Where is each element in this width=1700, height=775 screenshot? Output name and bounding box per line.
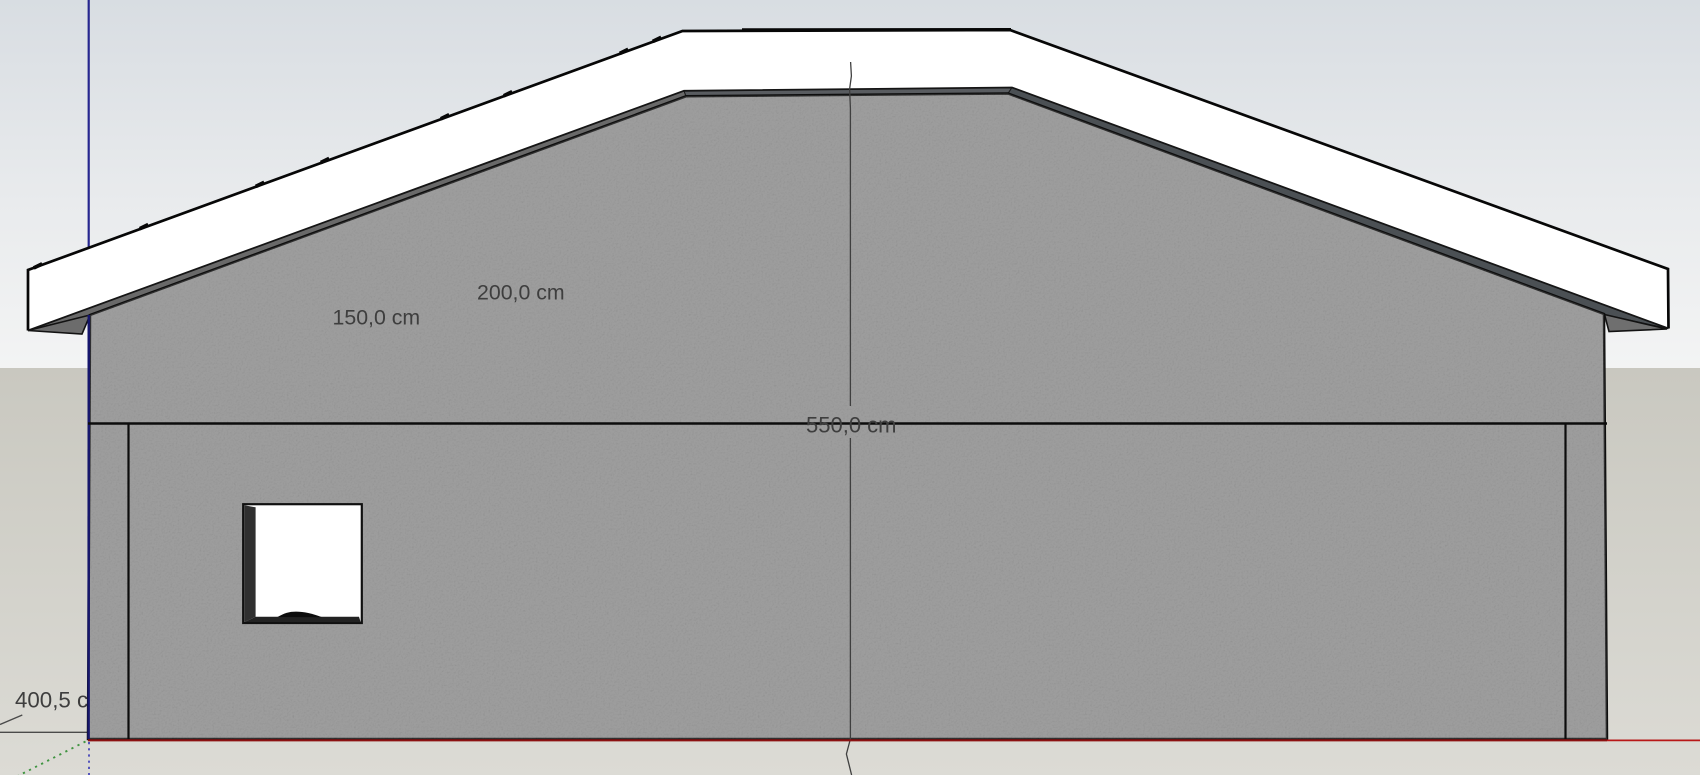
svg-text:200,0 cm: 200,0 cm bbox=[477, 281, 565, 305]
svg-text:550,0 cm: 550,0 cm bbox=[806, 413, 897, 438]
svg-text:150,0 cm: 150,0 cm bbox=[333, 306, 421, 330]
